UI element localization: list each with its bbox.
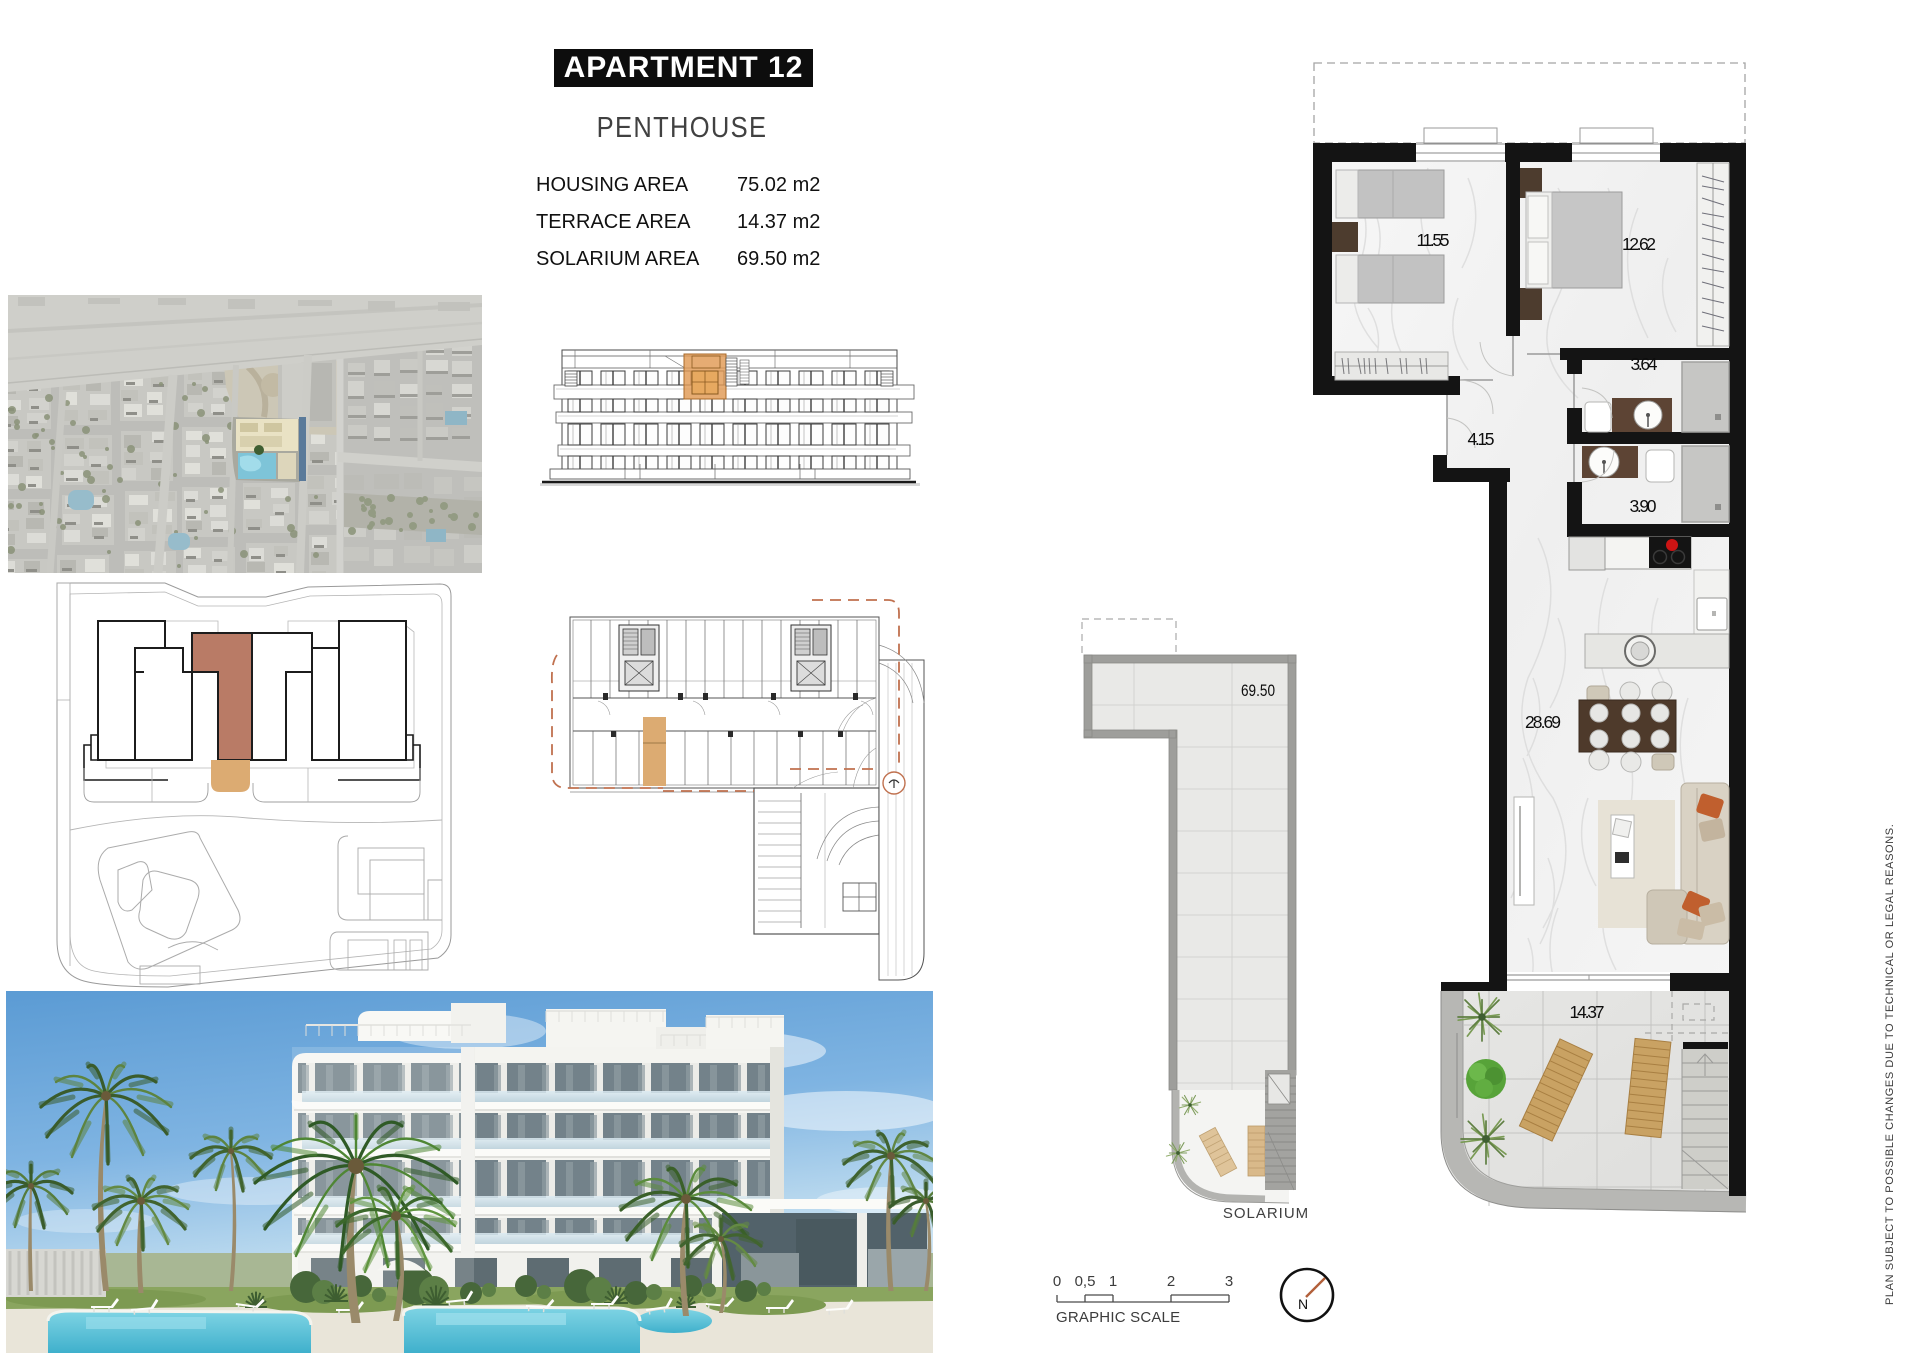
svg-text:4.15: 4.15: [1468, 429, 1495, 449]
svg-text:69.50: 69.50: [1241, 681, 1275, 700]
svg-text:GRAPHIC SCALE: GRAPHIC SCALE: [1056, 1309, 1180, 1326]
svg-text:3.64: 3.64: [1631, 354, 1658, 374]
svg-text:3.90: 3.90: [1630, 496, 1657, 516]
svg-text:12.62: 12.62: [1622, 234, 1656, 254]
svg-text:2: 2: [1167, 1273, 1175, 1290]
svg-text:28.69: 28.69: [1525, 712, 1561, 732]
svg-text:1: 1: [1109, 1273, 1117, 1290]
svg-text:0: 0: [1053, 1273, 1061, 1290]
svg-text:N: N: [1298, 1296, 1308, 1312]
svg-text:11.55: 11.55: [1417, 230, 1450, 250]
svg-text:3: 3: [1225, 1273, 1233, 1290]
svg-text:0,5: 0,5: [1075, 1273, 1096, 1290]
svg-text:14.37: 14.37: [1570, 1002, 1605, 1022]
